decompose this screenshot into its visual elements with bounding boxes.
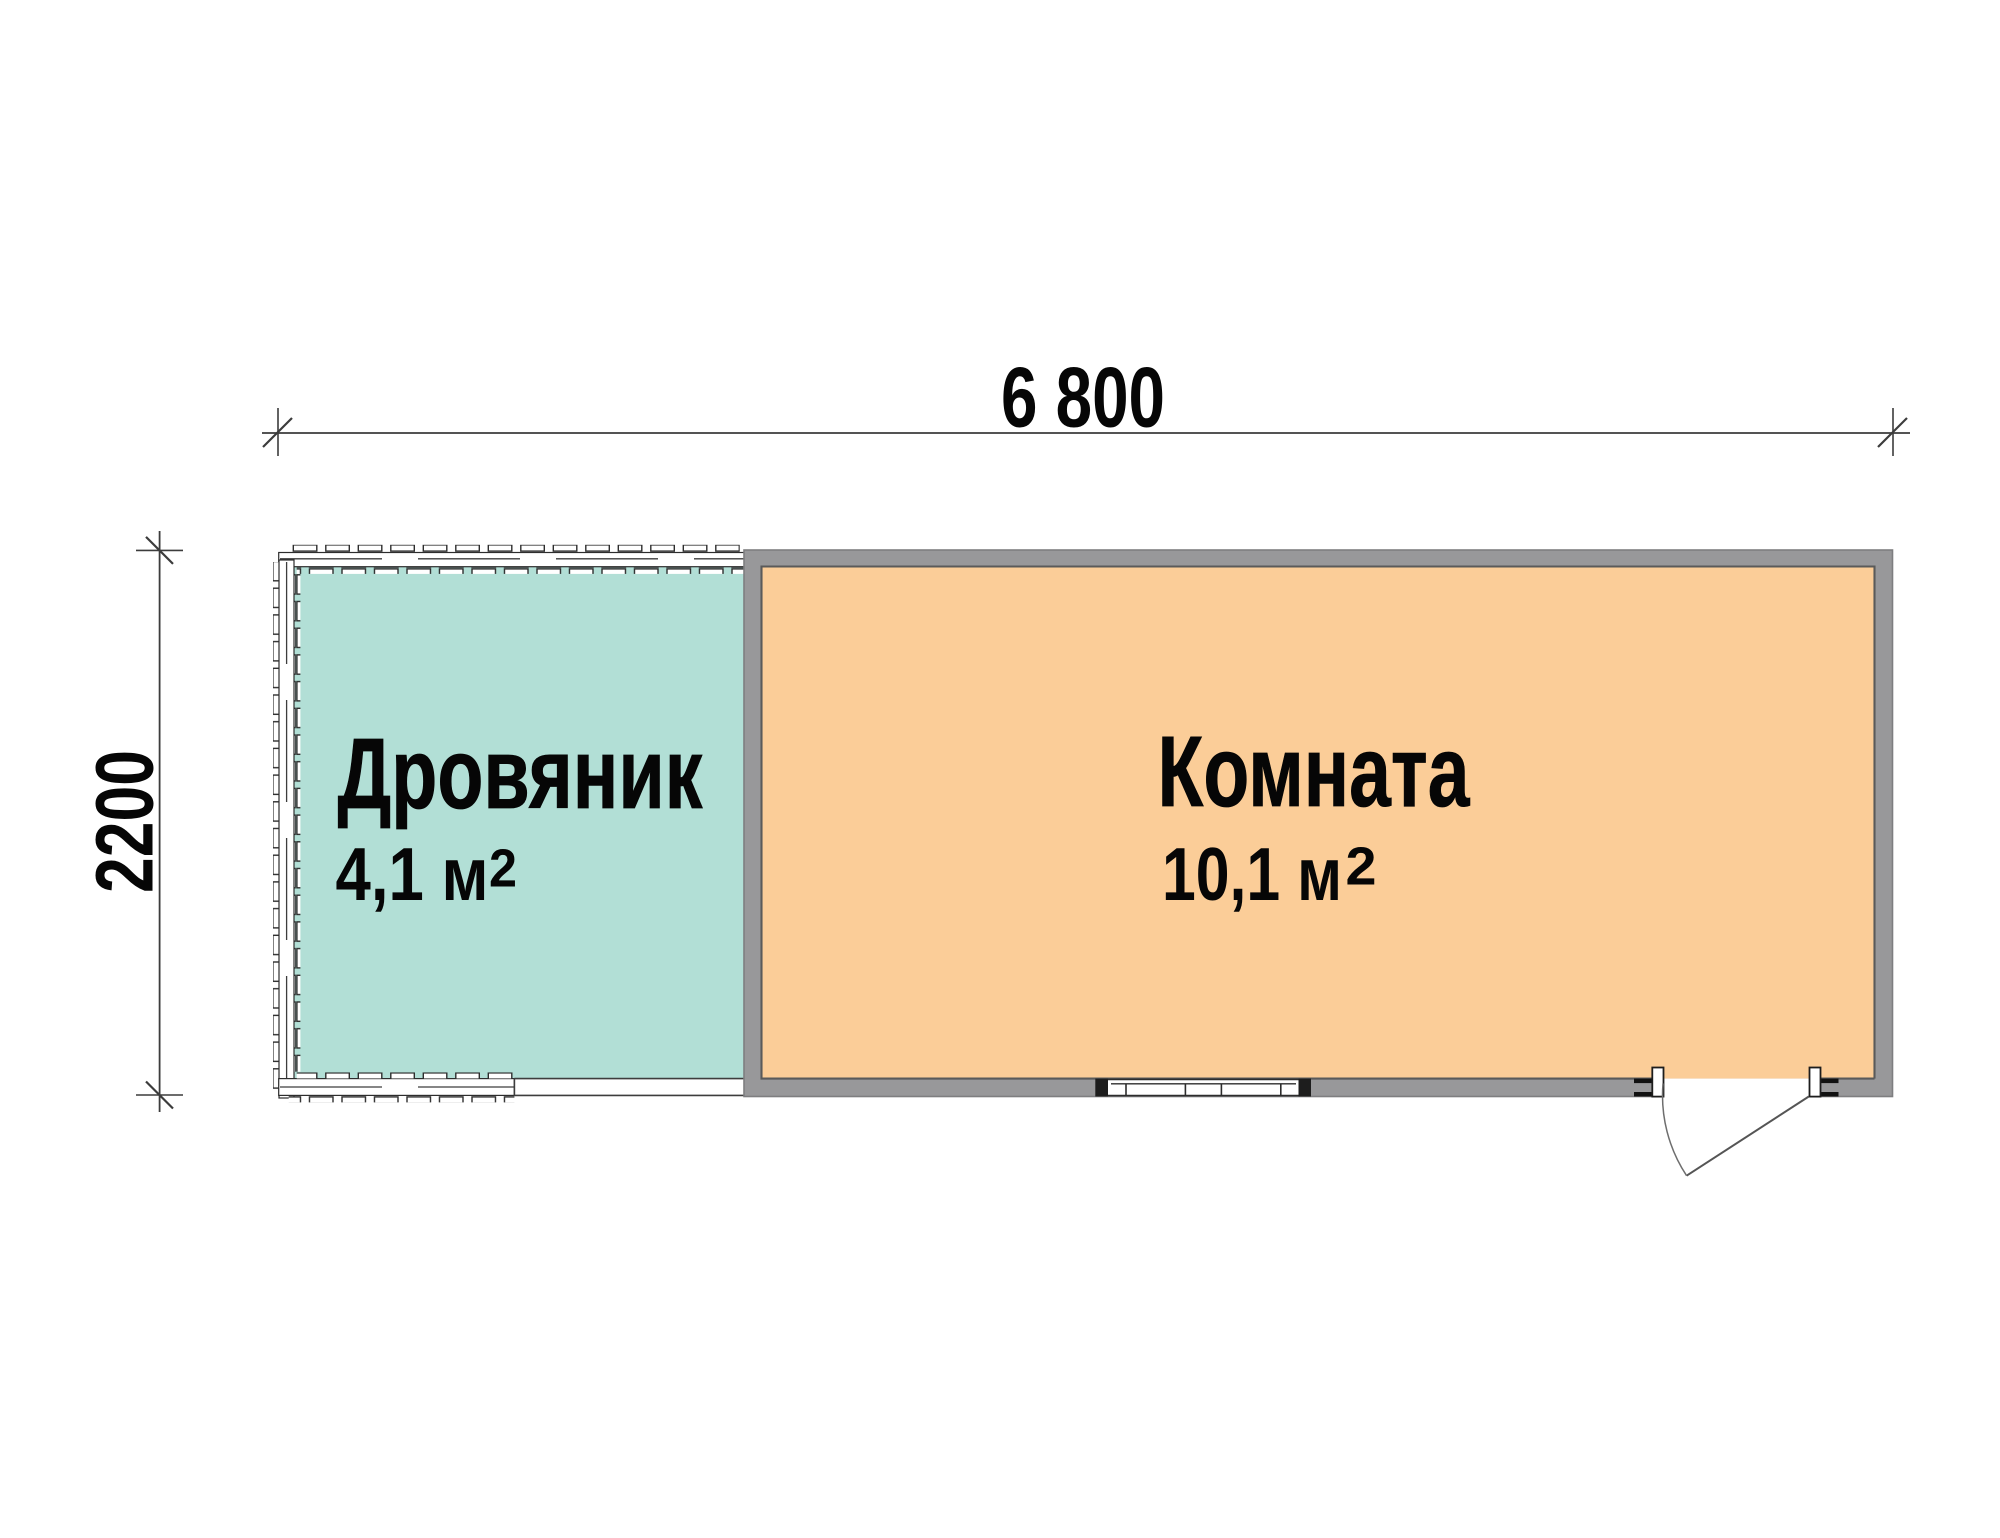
svg-text:2: 2 <box>489 839 517 899</box>
svg-text:Дровяник: Дровяник <box>338 718 704 830</box>
svg-text:2: 2 <box>1346 837 1377 897</box>
svg-text:4,1 м: 4,1 м <box>336 832 489 916</box>
svg-text:Комната: Комната <box>1158 716 1471 828</box>
svg-text:6 800: 6 800 <box>1001 350 1165 445</box>
svg-text:10,1 м: 10,1 м <box>1162 832 1342 916</box>
svg-text:2200: 2200 <box>80 750 171 893</box>
